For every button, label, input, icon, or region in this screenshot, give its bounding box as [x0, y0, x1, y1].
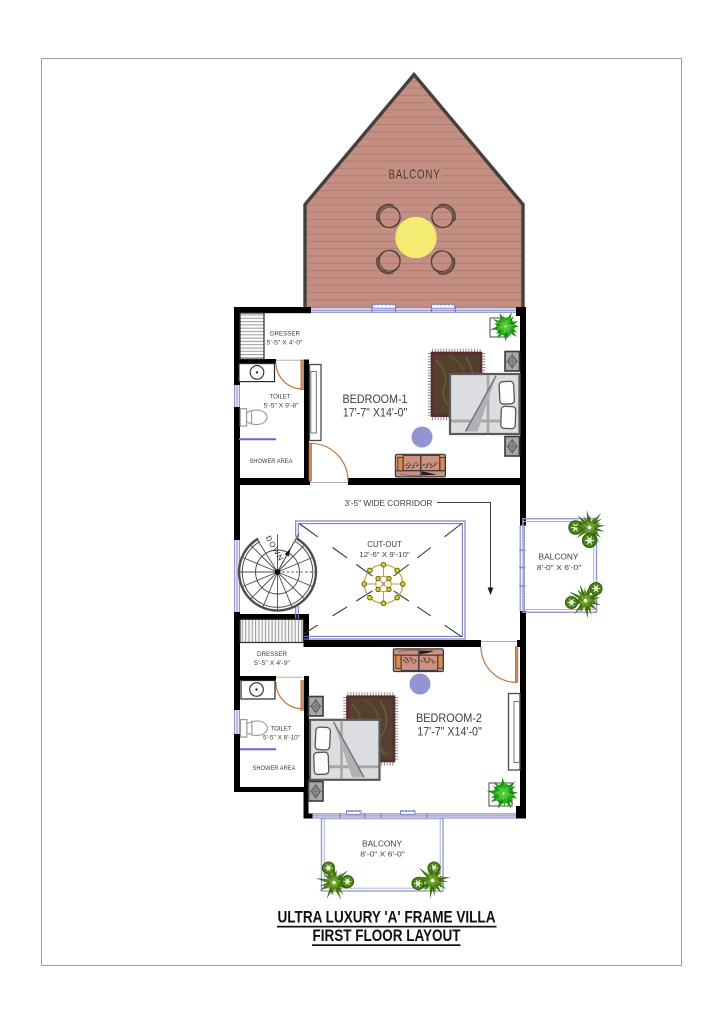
- svg-text:5'-5" X 9'-8": 5'-5" X 9'-8": [264, 403, 300, 410]
- svg-text:5'-5" X 8'-10": 5'-5" X 8'-10": [263, 735, 301, 742]
- svg-text:DRESSER: DRESSER: [257, 651, 287, 658]
- svg-text:BEDROOM-2: BEDROOM-2: [416, 711, 482, 725]
- svg-text:FIRST FLOOR LAYOUT: FIRST FLOOR LAYOUT: [313, 927, 461, 945]
- svg-text:BALCONY: BALCONY: [389, 167, 441, 182]
- svg-text:8'-0" X 6'-0": 8'-0" X 6'-0": [537, 563, 582, 572]
- svg-text:ULTRA LUXURY 'A' FRAME VILLA: ULTRA LUXURY 'A' FRAME VILLA: [278, 909, 496, 927]
- svg-text:BEDROOM-1: BEDROOM-1: [343, 392, 408, 406]
- svg-text:SHOWER AREA: SHOWER AREA: [250, 458, 294, 465]
- svg-text:BALCONY: BALCONY: [362, 840, 403, 849]
- svg-text:SHOWER AREA: SHOWER AREA: [253, 765, 297, 772]
- svg-text:5'-5" X 4'-9": 5'-5" X 4'-9": [254, 660, 291, 667]
- svg-text:DRESSER: DRESSER: [270, 331, 300, 338]
- svg-text:17'-7" X14'-0": 17'-7" X14'-0": [417, 725, 482, 739]
- svg-text:3'-5" WIDE CORRIDOR: 3'-5" WIDE CORRIDOR: [345, 499, 433, 508]
- svg-text:CUT-OUT: CUT-OUT: [367, 539, 402, 549]
- svg-text:5'-5" X 4'-0": 5'-5" X 4'-0": [267, 340, 304, 347]
- svg-text:BALCONY: BALCONY: [539, 553, 580, 562]
- svg-text:8'-0" X 6'-0": 8'-0" X 6'-0": [360, 850, 405, 859]
- svg-text:17'-7" X14'-0": 17'-7" X14'-0": [343, 405, 408, 419]
- svg-text:TOILET: TOILET: [271, 726, 292, 733]
- svg-text:TOILET: TOILET: [270, 394, 291, 401]
- svg-text:12'-6" X 9'-10": 12'-6" X 9'-10": [359, 550, 410, 559]
